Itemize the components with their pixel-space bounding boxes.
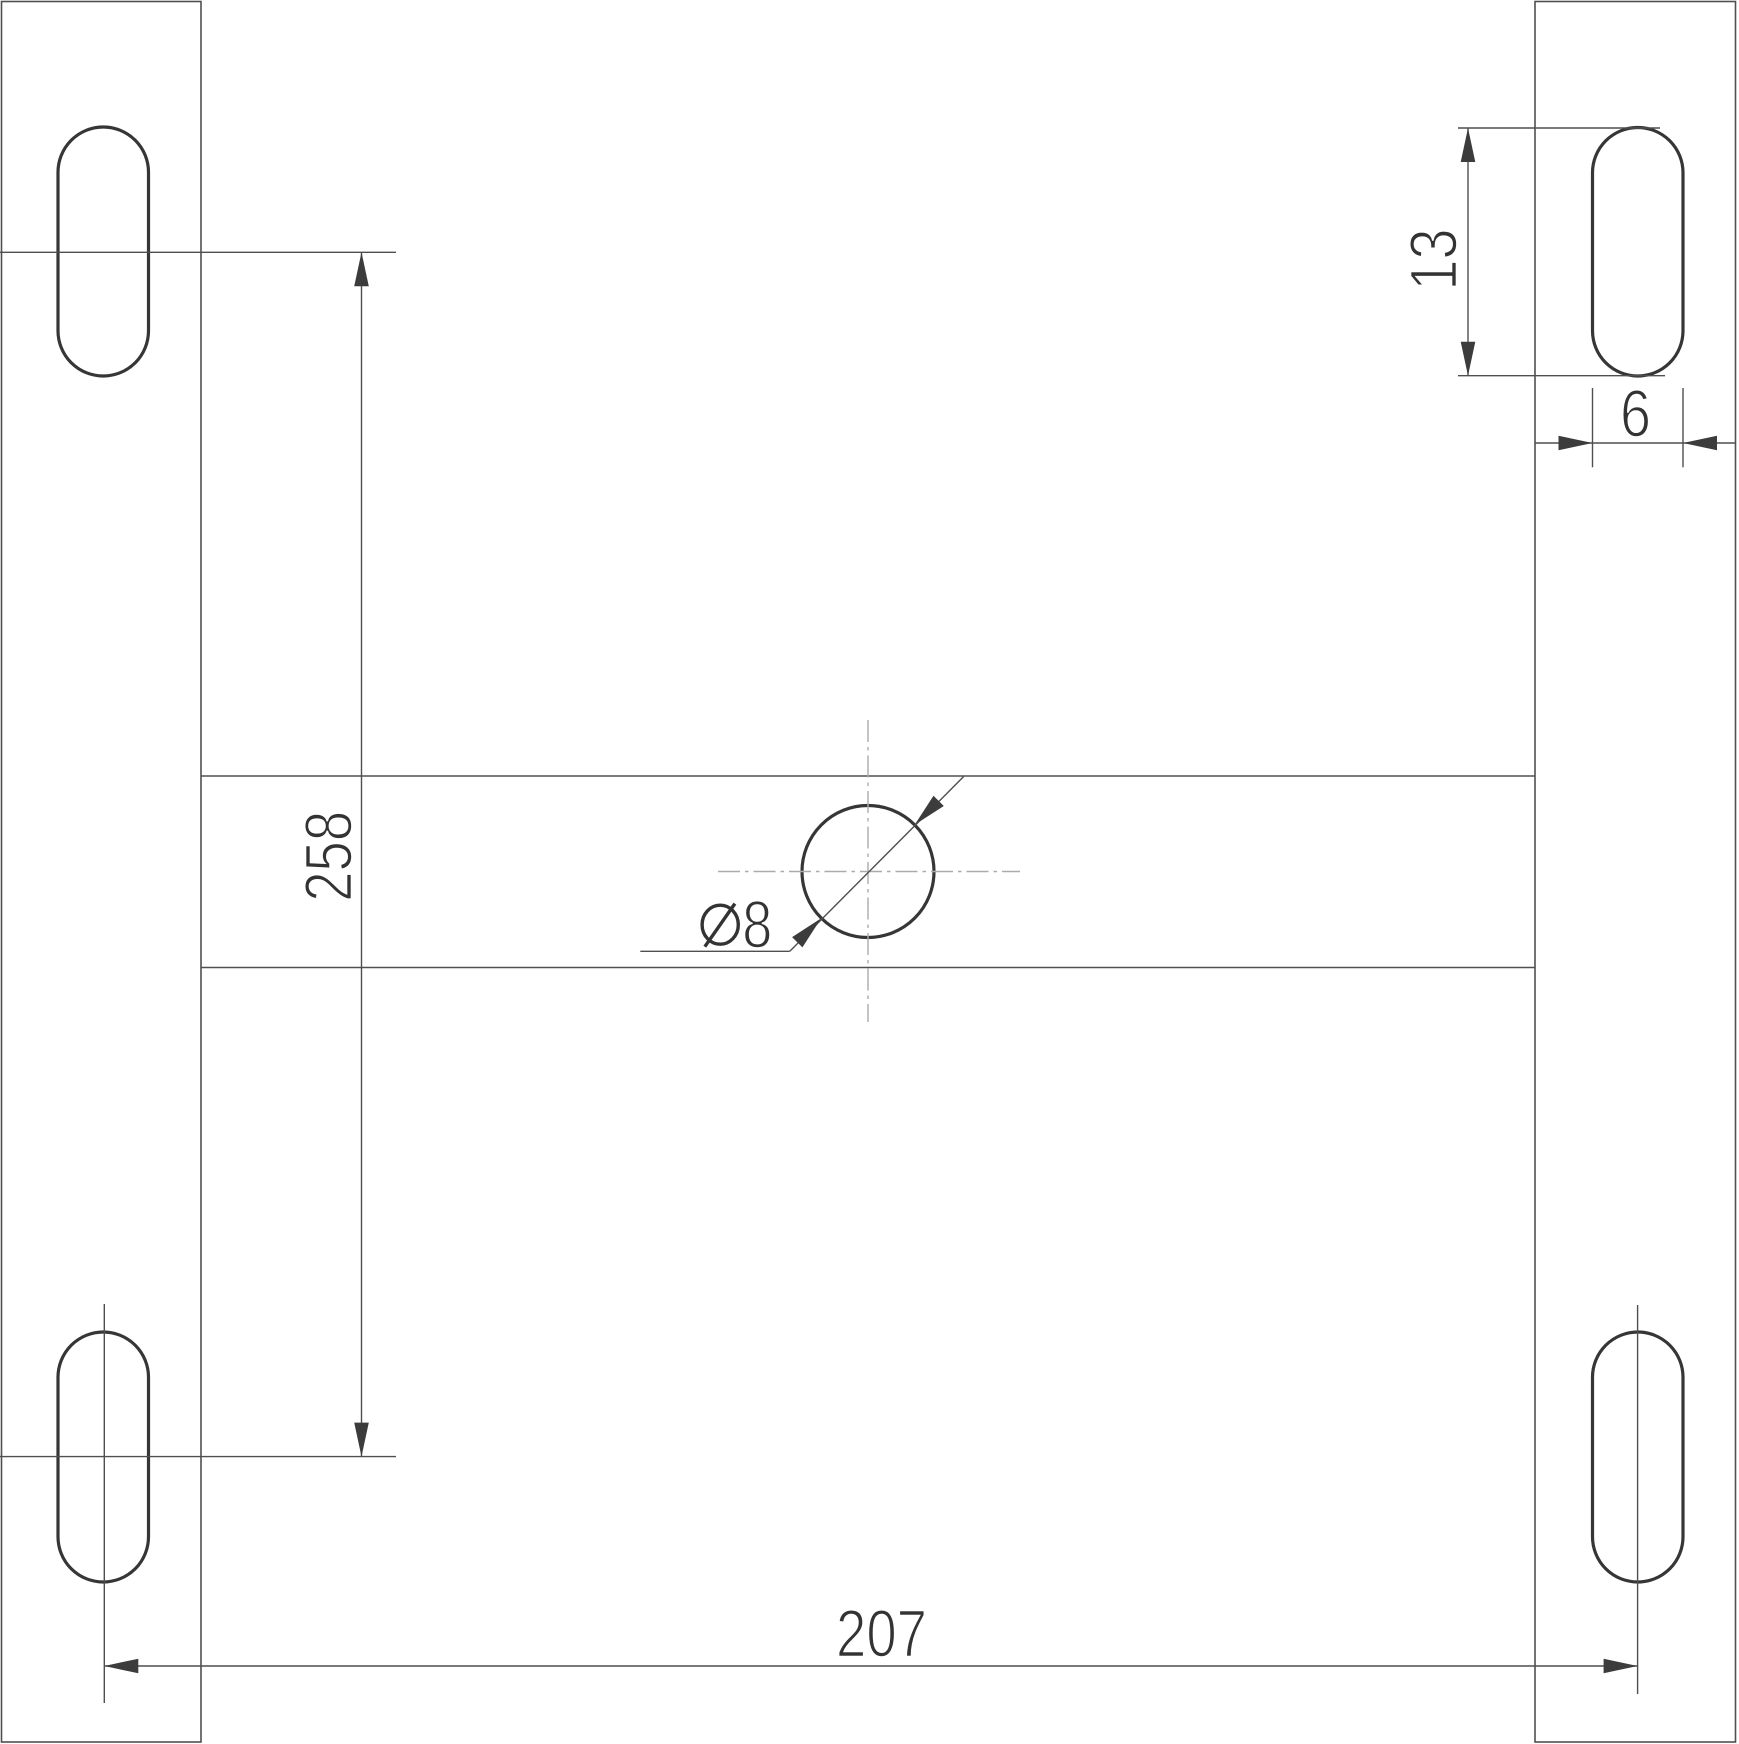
svg-text:8: 8 bbox=[742, 888, 772, 963]
svg-text:6: 6 bbox=[1620, 377, 1651, 452]
svg-text:258: 258 bbox=[291, 811, 366, 902]
svg-text:207: 207 bbox=[836, 1597, 927, 1672]
svg-text:13: 13 bbox=[1397, 229, 1472, 291]
